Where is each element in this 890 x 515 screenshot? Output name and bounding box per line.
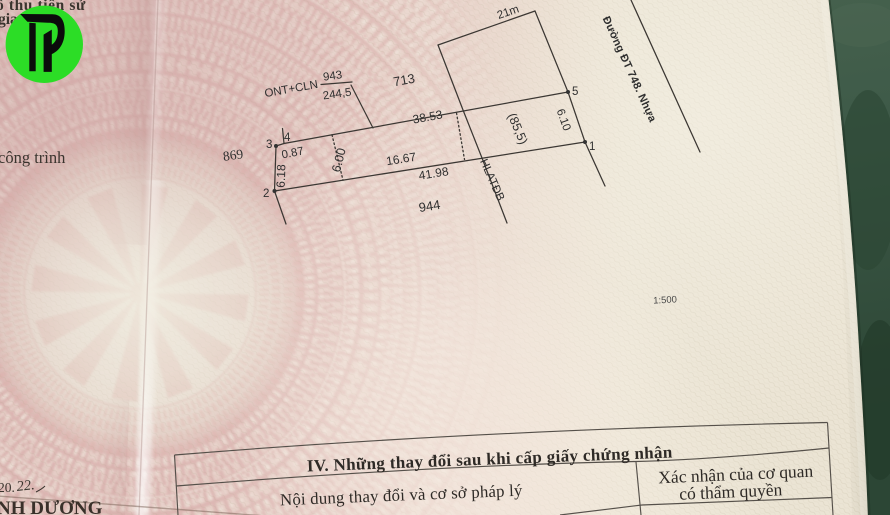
svg-text:NH DƯƠNG: NH DƯƠNG — [0, 498, 103, 515]
svg-text:3: 3 — [266, 139, 272, 151]
svg-text:22.: 22. — [16, 477, 36, 495]
svg-text:20.: 20. — [0, 480, 15, 495]
svg-text:công trình: công trình — [0, 148, 66, 167]
svg-text:1: 1 — [589, 141, 595, 153]
svg-text:2: 2 — [263, 188, 269, 200]
svg-text:1:500: 1:500 — [653, 294, 677, 306]
svg-text:4: 4 — [284, 132, 291, 144]
svg-text:5: 5 — [572, 86, 578, 98]
svg-text:6.18: 6.18 — [274, 164, 289, 188]
svg-text:869: 869 — [222, 146, 244, 164]
